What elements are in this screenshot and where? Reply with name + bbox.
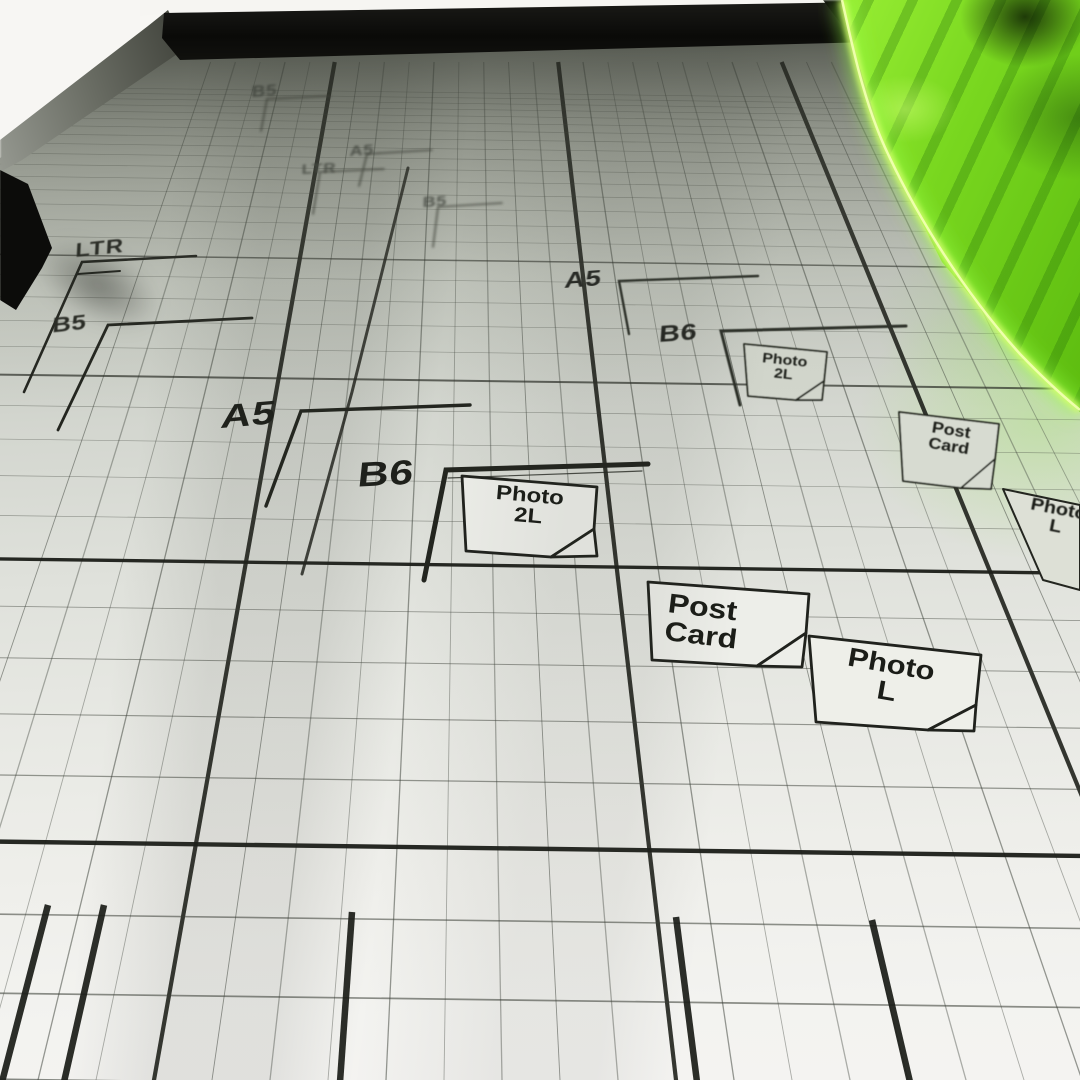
paper-size-label-b6: B6 — [356, 453, 416, 495]
paper-size-label-a5: A5 — [219, 393, 279, 436]
trimmer-photo: B5 A5 LTR B5 LTR B5 A5 B6 A5 B6 Photo 2L… — [0, 0, 1080, 1080]
paper-size-label-a5-far: A5 — [349, 141, 374, 160]
paper-size-label-a5-mid: A5 — [563, 265, 602, 293]
paper-size-label-b6-mid: B6 — [658, 319, 698, 348]
paper-size-label-b5-far-top: B5 — [251, 82, 277, 101]
paper-size-label-ltr-far: LTR — [301, 160, 336, 178]
paper-size-label-b5-far: B5 — [422, 193, 447, 211]
